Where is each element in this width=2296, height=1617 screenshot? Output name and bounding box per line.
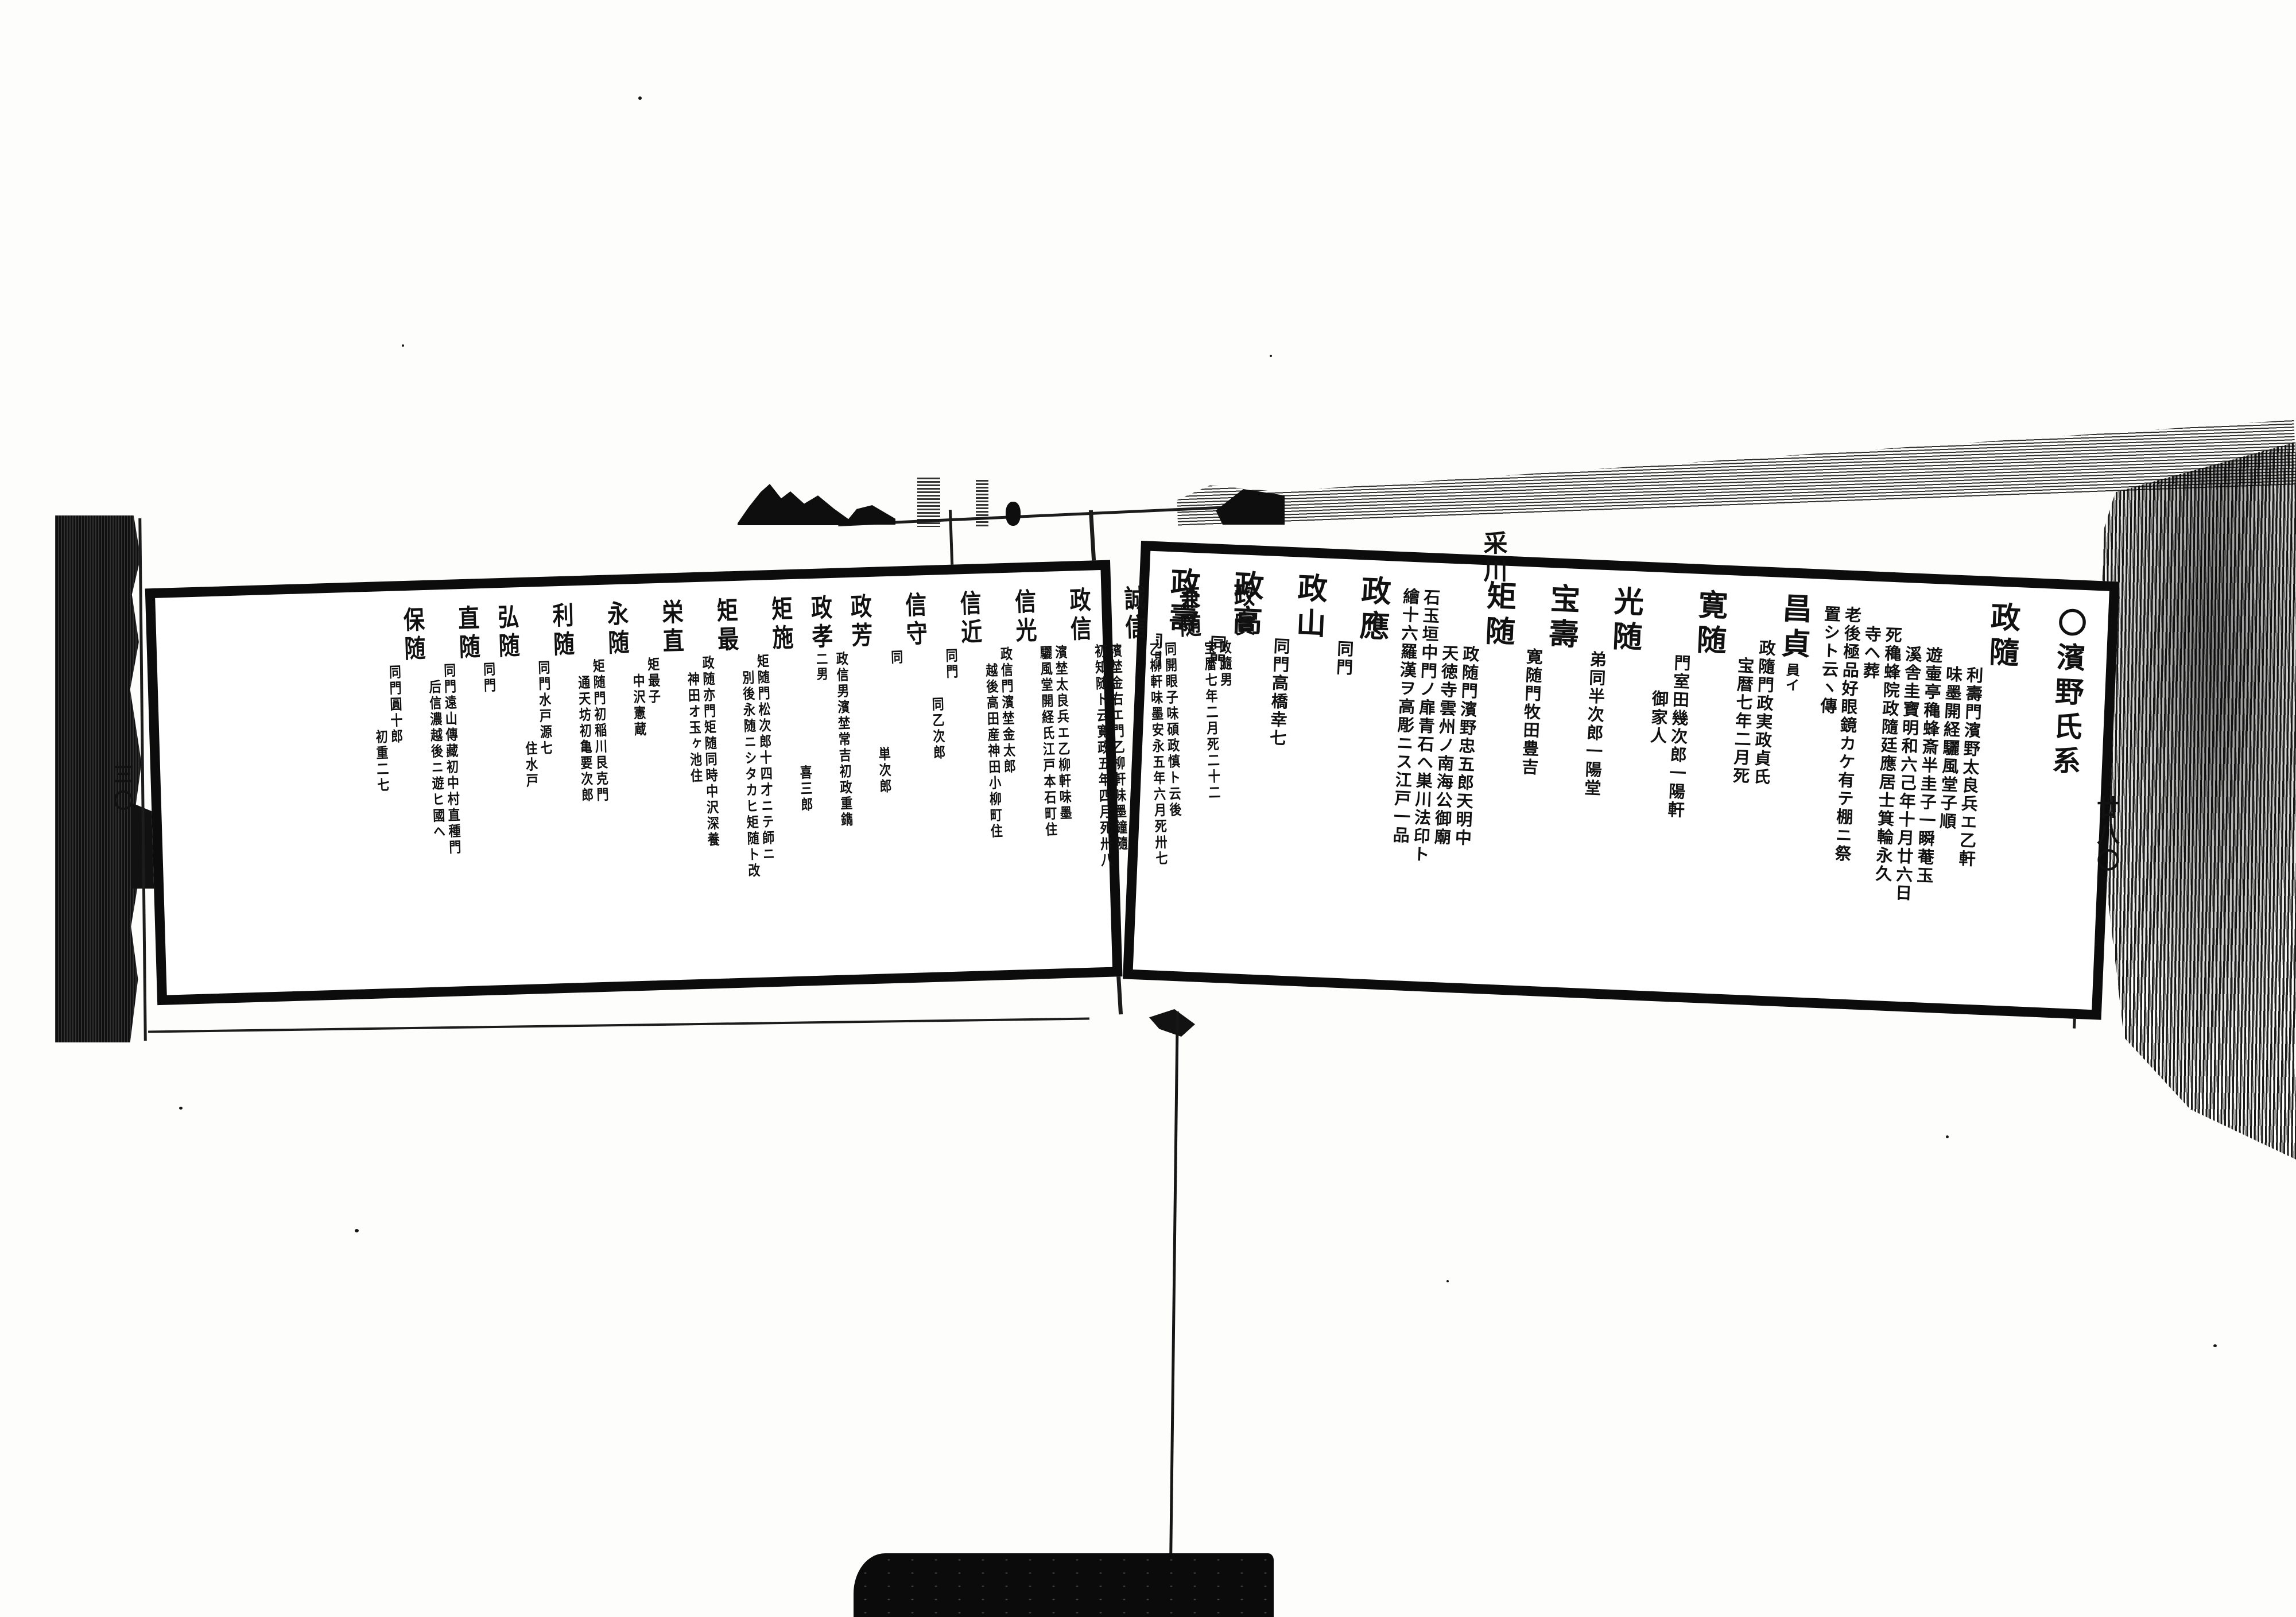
- scan-speck: [638, 96, 642, 100]
- ink-blob: [1006, 502, 1021, 526]
- entry-name: 政孝: [807, 594, 833, 652]
- entry-name: 光随: [1606, 585, 1644, 656]
- entry-ruby-note: 員イ: [1783, 662, 1801, 693]
- left-page: 政實政隨男宝暦七年二月死二十二兼随同開眼子味碩政慎ト云後乙柳軒味墨安永五年六月死…: [145, 560, 1123, 1006]
- left-page-text-block: 政實政隨男宝暦七年二月死二十二兼随同開眼子味碩政慎ト云後乙柳軒味墨安永五年六月死…: [338, 581, 1265, 977]
- entry-name: 政實: [1230, 581, 1256, 639]
- genealogy-entry: 矩施矩随門松次郎十四才ニテ師ニ別後永随ニシタカヒ矩随ト改: [738, 595, 802, 965]
- entry-name: 信光: [1011, 588, 1037, 646]
- genealogy-entry: 政隨利壽門濱野太良兵エ乙軒味墨開経驪風堂子順遊壷亭穐蜂斎半圭子一瞬菴玉溪舎圭寶明…: [1806, 594, 2020, 994]
- entry-name: 弘随: [494, 603, 520, 661]
- scan-speck: [1446, 1280, 1449, 1282]
- genealogy-entry: 直随同門遠山傳藏初中村直種門后信濃越後ニ遊ヒ國ヘ: [425, 604, 489, 974]
- entry-name: 誠信: [1120, 585, 1146, 643]
- entry-name: 矩随: [1479, 580, 1517, 651]
- entry-ruby-note: 二男: [814, 652, 829, 682]
- genealogy-entry: 政實政隨男宝暦七年二月死二十二: [1200, 581, 1265, 951]
- string-knot: [1149, 1009, 1195, 1037]
- entry-name: 政應: [1353, 575, 1391, 646]
- ink-blob: [738, 484, 852, 525]
- entry-annotation-column: 同門: [1321, 639, 1354, 965]
- genealogy-entry: 昌貞員イ政隨門政実政貞氏宝暦七年二月死: [1722, 591, 1812, 985]
- ink-blob: [917, 478, 940, 527]
- genealogy-entry: 信近同門同乙次郎: [926, 590, 991, 959]
- genealogy-entry: 永随矩随門初稲川艮克門通天坊初亀要次郎: [574, 600, 638, 970]
- genealogy-entry: 矩最政随亦門矩随同時中沢深養神田オ玉ヶ池住: [683, 597, 747, 967]
- scan-speck: [1270, 355, 1272, 357]
- scanned-book-spread: 采川 廿八〇 三〇 〇濱野氏系 政隨利壽門濱野太良兵エ乙軒味墨開経驪風堂子順遊壷…: [0, 0, 2296, 1617]
- entry-name: 永随: [603, 600, 630, 658]
- genealogy-entry: 宝壽寛随門牧田豊吉: [1510, 581, 1580, 975]
- genealogy-entry: 政信濱埜太良兵エ乙柳軒味墨驪風堂開経氏江戸本石町住: [1036, 587, 1100, 956]
- genealogy-entry: 信守同単次郎: [872, 591, 936, 961]
- entry-name: 寛随: [1690, 588, 1728, 660]
- genealogy-entry: 政應同門: [1321, 573, 1391, 967]
- genealogy-entry: 政山同門高橋幸七: [1258, 571, 1327, 964]
- bottom-dark-object: [854, 1553, 1274, 1617]
- scan-speck: [2213, 1344, 2217, 1347]
- entry-name: 政芳: [847, 593, 873, 651]
- genealogy-entry: 寛随門室田幾次郎一陽軒御家人: [1638, 587, 1728, 981]
- entry-annotation-column: 弟同半次郎一陽堂: [1574, 650, 1607, 976]
- entry-name: 保随: [400, 606, 426, 664]
- entry-name: 栄直: [658, 599, 684, 657]
- ink-blob: [976, 480, 988, 527]
- ink-blob: [844, 505, 895, 525]
- right-folio-edge-mark: 廿八〇: [2089, 796, 2123, 875]
- genealogy-entry: 信光政信門濱埜金太郎越後高田産神田小柳町住: [982, 588, 1046, 957]
- hanging-string: [1169, 1011, 1179, 1557]
- scan-speck: [402, 344, 404, 347]
- entry-name: 宝壽: [1543, 583, 1581, 654]
- entry-name: 政隨: [1983, 601, 2021, 672]
- genealogy-entry: 光随弟同半次郎一陽堂: [1574, 584, 1643, 978]
- genealogy-entry: 保随同門圓十郎初重二七: [370, 606, 435, 976]
- genealogy-entry: 兼随同開眼子味碩政慎ト云後乙柳軒味墨安永五年六月死卅七: [1146, 583, 1210, 953]
- genealogy-entry: 矩随政随門濱野忠五郎天明中天徳寺雲州ノ南海公御廟石玉垣中門ノ扉青石ヘ巣川法印ト繪…: [1385, 576, 1517, 972]
- right-page: 〇濱野氏系 政隨利壽門濱野太良兵エ乙軒味墨開経驪風堂子順遊壷亭穐蜂斎半圭子一瞬菴…: [1123, 541, 2119, 1020]
- top-margin-mark: 采川: [1476, 530, 1511, 585]
- entry-name: 直随: [454, 604, 480, 662]
- entry-name: 矩施: [767, 595, 794, 653]
- entry-name: 信守: [901, 591, 928, 649]
- entry-name: 矩最: [712, 597, 739, 655]
- scan-speck: [355, 1229, 359, 1232]
- scan-speck: [179, 1107, 183, 1110]
- entry-name: 昌貞: [1775, 592, 1813, 664]
- scan-speck: [1946, 1135, 1949, 1138]
- genealogy-entry: 利随同門水戸源七住水戸: [519, 602, 583, 971]
- entry-name: 信近: [956, 590, 982, 647]
- entry-name: 兼随: [1175, 583, 1201, 641]
- genealogy-entry: 誠信濱埜金右エ門乙柳軒味墨鐘隨初知随ト云寛政五年四月死卅八: [1091, 585, 1155, 955]
- genealogy-title: 〇濱野氏系: [2037, 607, 2088, 996]
- entry-name: 政信: [1065, 587, 1092, 645]
- genealogy-entry: 栄直矩最子中沢憲蔵: [629, 599, 693, 968]
- entry-annotation-column: 寛随門牧田豊吉: [1510, 647, 1543, 974]
- under-leaf-edge-line: [148, 1018, 1089, 1033]
- left-folio-edge-mark: 三〇: [107, 763, 137, 816]
- entry-name: 利随: [548, 602, 575, 660]
- right-page-text-block: 〇濱野氏系 政隨利壽門濱野太良兵エ乙軒味墨開経驪風堂子順遊壷亭穐蜂斎半圭子一瞬菴…: [1143, 566, 2088, 996]
- entry-name: 政山: [1290, 572, 1328, 643]
